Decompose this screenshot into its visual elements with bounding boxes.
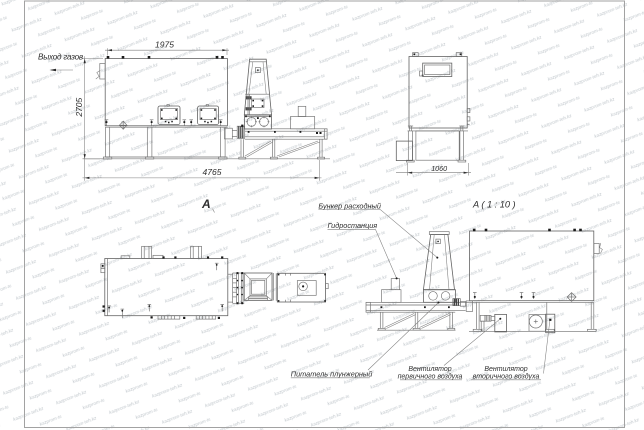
svg-text:2705: 2705 — [74, 97, 84, 117]
svg-text:A ( 1 : 10 ): A ( 1 : 10 ) — [472, 200, 516, 210]
svg-text:1975: 1975 — [155, 40, 174, 50]
svg-text:Бункер расходный: Бункер расходный — [318, 201, 381, 210]
svg-text:A: A — [201, 197, 211, 211]
svg-text:Питатель плунжерный: Питатель плунжерный — [291, 370, 373, 379]
svg-text:Выход газов: Выход газов — [38, 53, 84, 62]
svg-text:Вентилятор: Вентилятор — [408, 366, 451, 373]
svg-text:Вентилятор: Вентилятор — [484, 366, 527, 373]
svg-text:4765: 4765 — [203, 167, 222, 177]
svg-text:вторичного воздуха: вторичного воздуха — [473, 373, 540, 381]
svg-text:первичного воздуха: первичного воздуха — [398, 373, 463, 381]
svg-text:1060: 1060 — [431, 164, 447, 173]
svg-text:Гидростанция: Гидростанция — [328, 221, 378, 230]
